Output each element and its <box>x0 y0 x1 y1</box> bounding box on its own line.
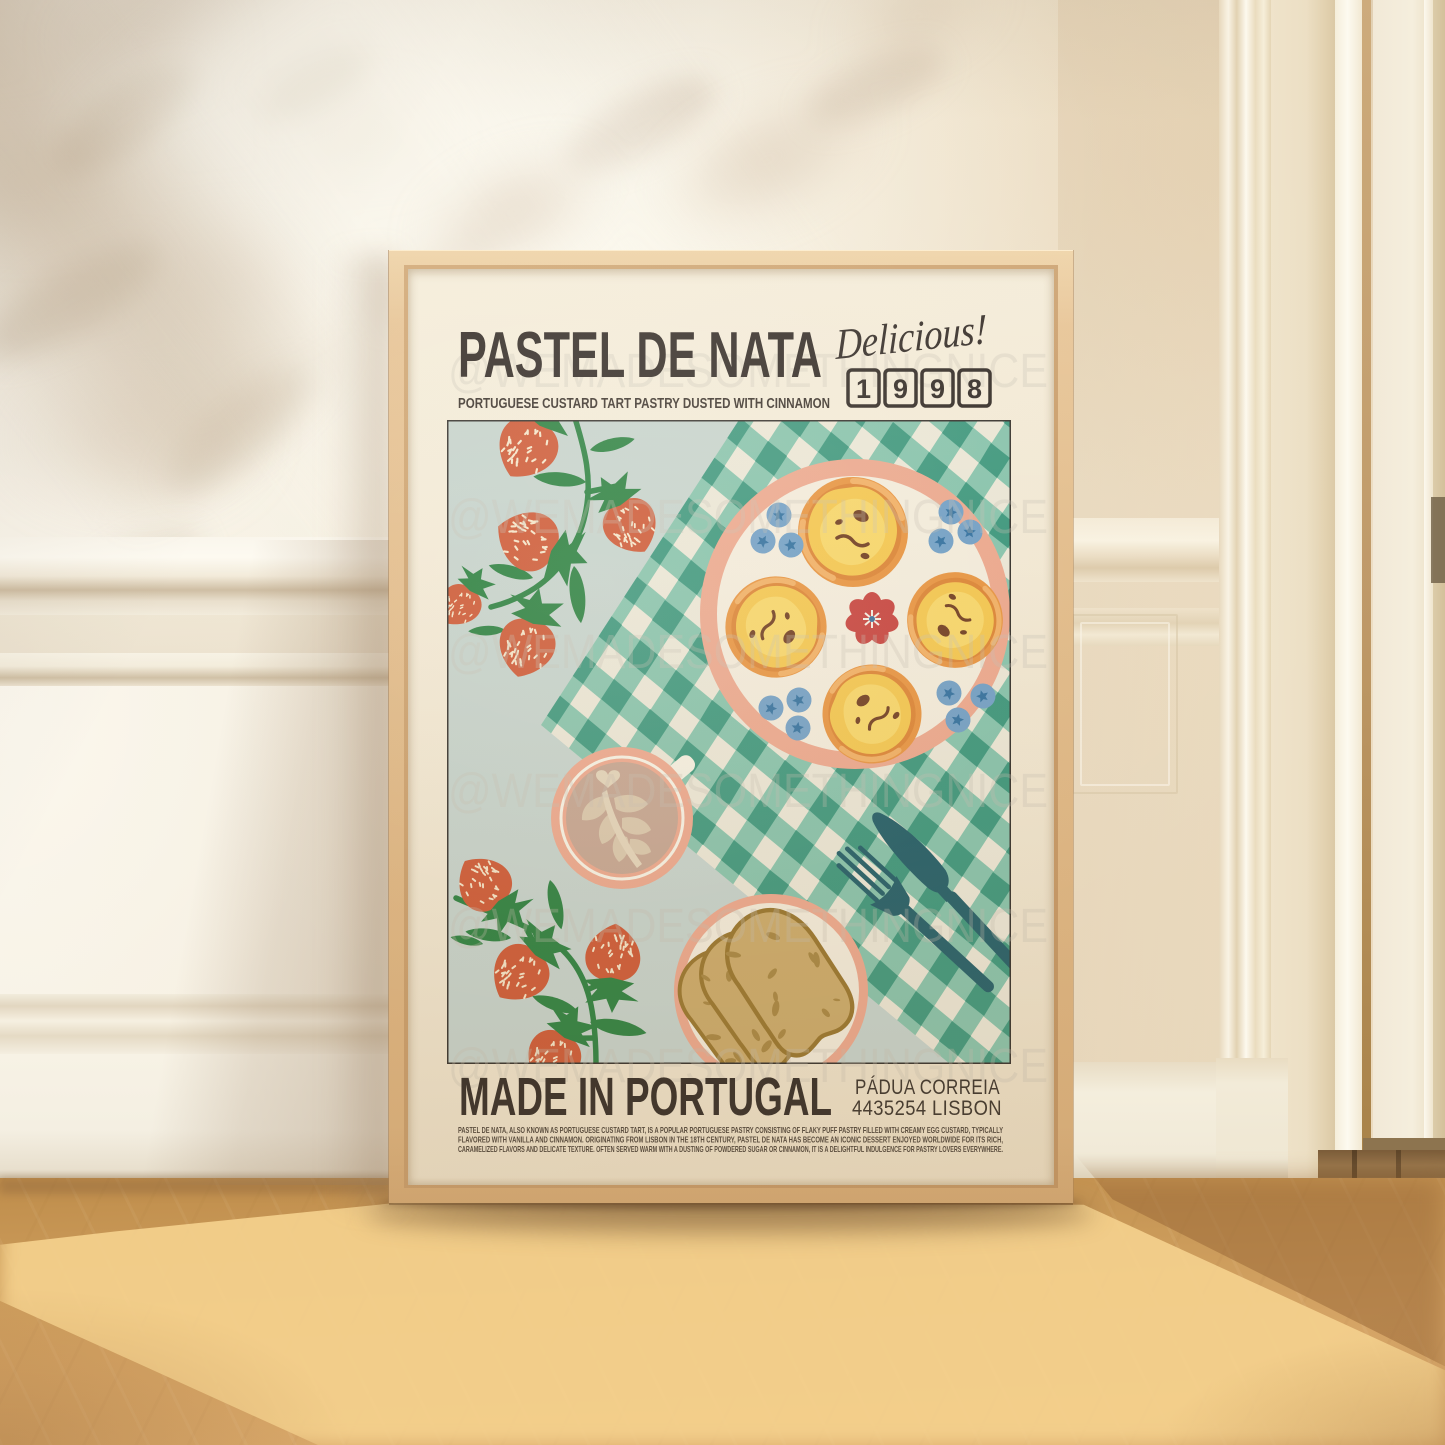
svg-text:PASTEL DE NATA, ALSO KNOWN AS: PASTEL DE NATA, ALSO KNOWN AS PORTUGUESE… <box>458 1125 1003 1135</box>
svg-text:MADE IN PORTUGAL: MADE IN PORTUGAL <box>459 1067 832 1127</box>
svg-text:@WEMADESOMETHINGNICE: @WEMADESOMETHINGNICE <box>448 626 1048 679</box>
svg-text:PASTEL DE NATA: PASTEL DE NATA <box>458 318 822 392</box>
svg-text:9: 9 <box>893 374 908 404</box>
svg-text:9: 9 <box>930 374 945 404</box>
svg-text:@WEMADESOMETHINGNICE: @WEMADESOMETHINGNICE <box>448 900 1048 953</box>
svg-text:@WEMADESOMETHINGNICE: @WEMADESOMETHINGNICE <box>448 491 1048 544</box>
svg-text:CARAMELIZED FLAVORS AND DELICA: CARAMELIZED FLAVORS AND DELICATE TEXTURE… <box>458 1144 1003 1154</box>
svg-text:4435254 LISBON: 4435254 LISBON <box>852 1096 1002 1120</box>
svg-text:PORTUGUESE CUSTARD TART PASTRY: PORTUGUESE CUSTARD TART PASTRY DUSTED WI… <box>458 396 830 412</box>
svg-text:8: 8 <box>967 374 982 404</box>
svg-text:FLAVORED WITH VANILLA AND CINN: FLAVORED WITH VANILLA AND CINNAMON. ORIG… <box>458 1135 1003 1145</box>
svg-text:1: 1 <box>856 374 871 404</box>
svg-text:@WEMADESOMETHINGNICE: @WEMADESOMETHINGNICE <box>448 765 1048 818</box>
